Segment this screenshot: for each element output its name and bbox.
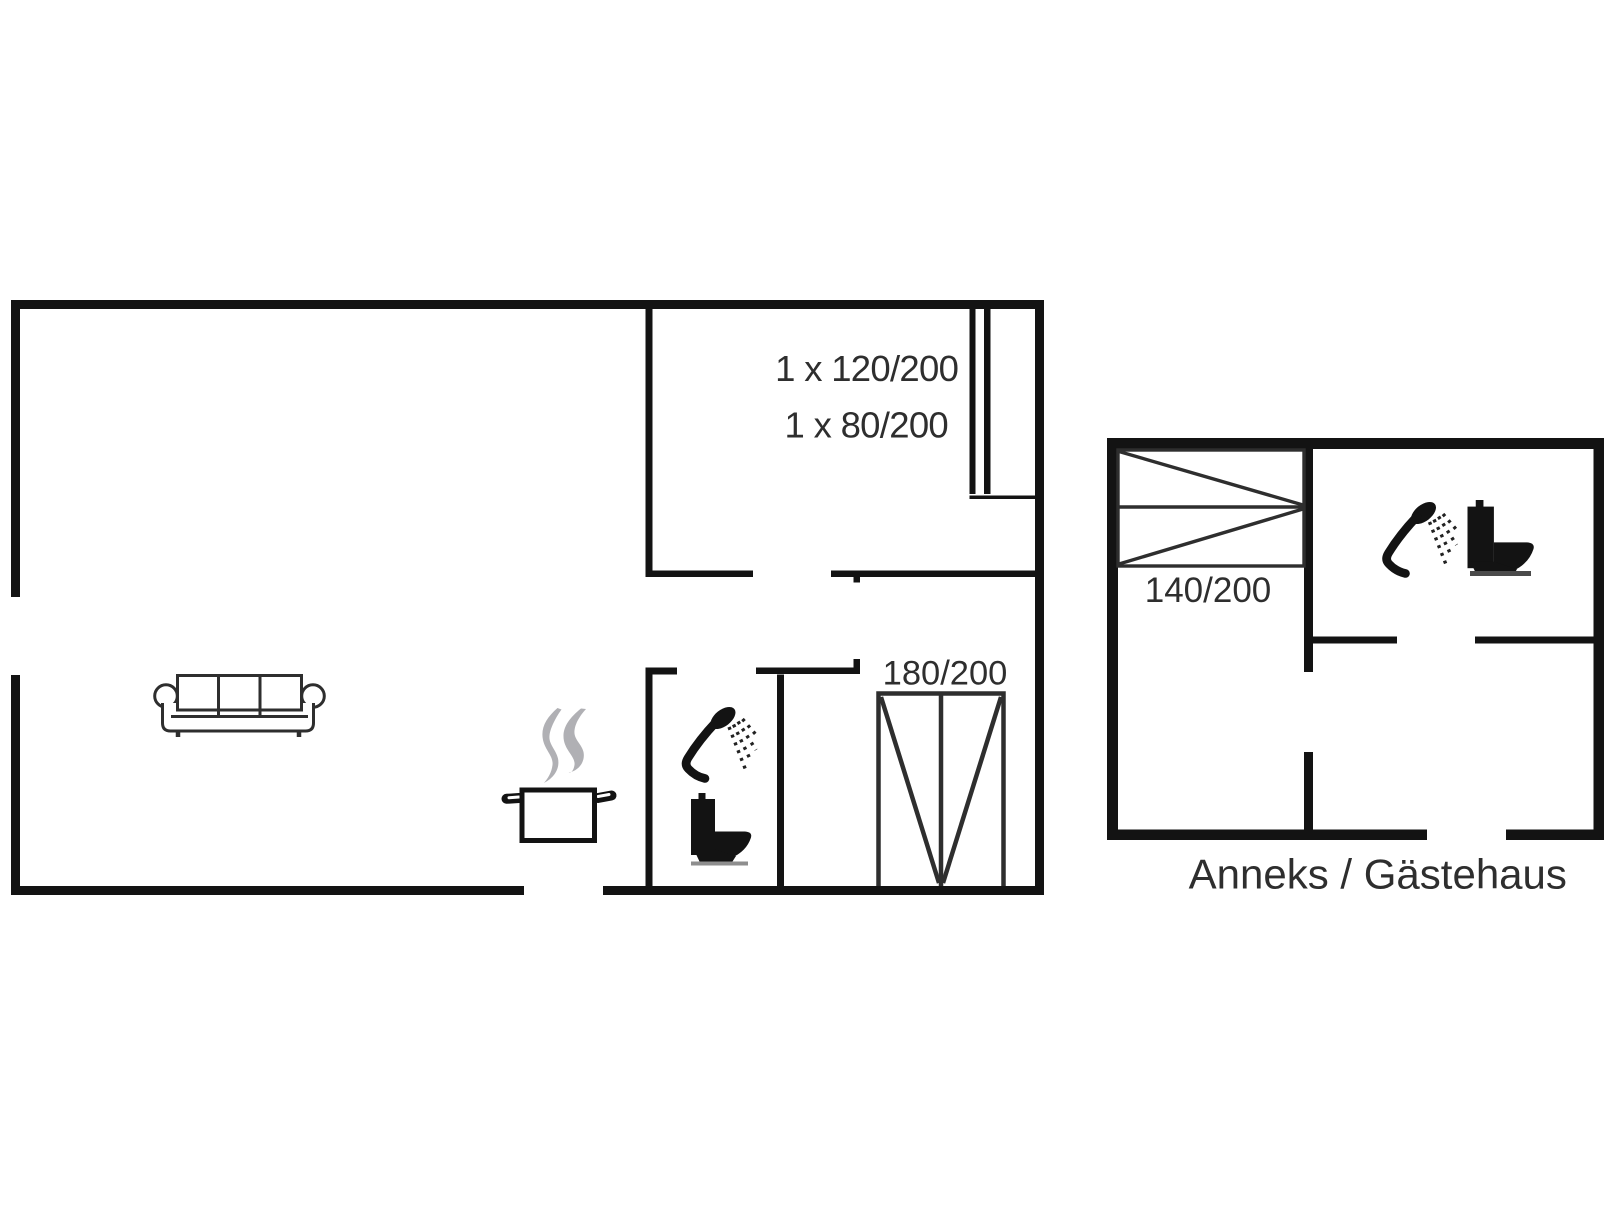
svg-text:Anneks / Gästehaus: Anneks / Gästehaus <box>1189 851 1567 898</box>
svg-text:140/200: 140/200 <box>1145 571 1272 610</box>
svg-text:180/200: 180/200 <box>883 655 1008 693</box>
svg-text:1 x 80/200: 1 x 80/200 <box>785 405 948 446</box>
svg-text:1 x 120/200: 1 x 120/200 <box>775 348 958 389</box>
